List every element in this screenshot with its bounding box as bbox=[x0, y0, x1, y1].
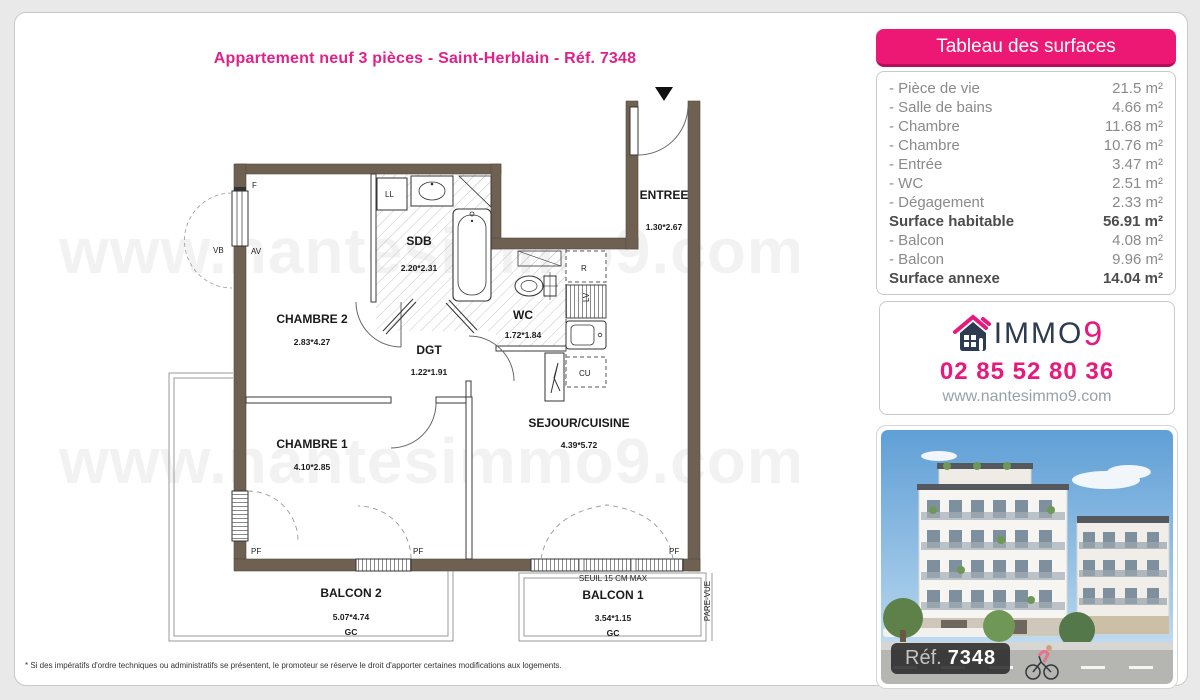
surface-row: - WC2.51 m² bbox=[889, 174, 1163, 193]
surface-row-label: Surface annexe bbox=[889, 269, 1000, 288]
room-gc-balcon1: GC bbox=[607, 628, 620, 638]
label-ll: LL bbox=[385, 190, 394, 199]
surface-row-value: 10.76 m² bbox=[1104, 136, 1163, 155]
photo-ref-badge: Réf.7348 bbox=[891, 643, 1010, 674]
surface-row-value: 2.33 m² bbox=[1112, 193, 1163, 212]
surface-row-value: 56.91 m² bbox=[1103, 212, 1163, 231]
pare-vue-note: PARE-VUE bbox=[703, 581, 712, 621]
label-r: R bbox=[581, 264, 587, 273]
surface-row: - Chambre10.76 m² bbox=[889, 136, 1163, 155]
building-photo: Réf.7348 bbox=[881, 430, 1173, 684]
balcony-door-arcs bbox=[248, 491, 673, 559]
room-dims-balcon1: 3.54*1.15 bbox=[595, 613, 632, 623]
window-f bbox=[232, 191, 248, 246]
room-dims-chambre1: 4.10*2.85 bbox=[294, 462, 331, 472]
label-cu: CU bbox=[579, 369, 591, 378]
toilet bbox=[515, 276, 543, 296]
washbasin bbox=[411, 176, 453, 206]
surfaces-panel: Tableau des surfaces - Pièce de vie21.5 … bbox=[876, 29, 1176, 295]
surface-subtotal-row: Surface habitable56.91 m² bbox=[889, 212, 1163, 231]
room-label-dgt: DGT bbox=[416, 343, 442, 357]
label-lv: LV bbox=[582, 292, 591, 302]
surface-row: - Balcon4.08 m² bbox=[889, 231, 1163, 250]
surface-row-value: 3.47 m² bbox=[1112, 155, 1163, 174]
room-label-balcon2: BALCON 2 bbox=[320, 586, 382, 600]
label-pf-chambre1: PF bbox=[413, 547, 423, 556]
surface-row-label: - Entrée bbox=[889, 155, 942, 174]
surface-row-label: - Balcon bbox=[889, 250, 944, 269]
room-label-sdb: SDB bbox=[406, 234, 432, 248]
entrance-door-arc bbox=[638, 107, 688, 155]
surface-row: - Dégagement2.33 m² bbox=[889, 193, 1163, 212]
page-title: Appartement neuf 3 pièces - Saint-Herbla… bbox=[15, 50, 835, 68]
label-av: AV bbox=[251, 247, 262, 256]
surface-row: - Salle de bains4.66 m² bbox=[889, 98, 1163, 117]
label-pf-left: PF bbox=[251, 547, 261, 556]
surface-row-label: - WC bbox=[889, 174, 923, 193]
building-main bbox=[917, 462, 1069, 636]
room-label-sejour: SEJOUR/CUISINE bbox=[528, 416, 629, 430]
room-dims-dgt: 1.22*1.91 bbox=[411, 367, 448, 377]
floor-plan-svg: CHAMBRE 2 2.83*4.27 CHAMBRE 1 4.10*2.85 … bbox=[161, 81, 781, 666]
window-pf-left bbox=[232, 491, 248, 541]
surface-row-value: 14.04 m² bbox=[1103, 269, 1163, 288]
surface-row-value: 4.66 m² bbox=[1112, 98, 1163, 117]
room-gc-balcon2: GC bbox=[345, 627, 358, 637]
surface-total-row: Surface annexe14.04 m² bbox=[889, 269, 1163, 288]
surface-row-value: 21.5 m² bbox=[1112, 79, 1163, 98]
window-pf-sejour bbox=[531, 559, 683, 571]
agency-card: IMMO9 02 85 52 80 36 www.nantesimmo9.com bbox=[879, 301, 1175, 415]
ref-label: Réf. bbox=[905, 647, 942, 669]
agency-phone[interactable]: 02 85 52 80 36 bbox=[880, 358, 1174, 386]
balcon2-outline bbox=[169, 373, 453, 641]
room-label-entree: ENTREE bbox=[640, 188, 689, 202]
surface-row-value: 11.68 m² bbox=[1105, 117, 1163, 136]
surface-row-label: - Salle de bains bbox=[889, 98, 992, 117]
label-f: F bbox=[252, 181, 257, 190]
agency-website-link[interactable]: www.nantesimmo9.com bbox=[880, 388, 1174, 406]
room-dims-chambre2: 2.83*4.27 bbox=[294, 337, 331, 347]
window-pf-chambre1 bbox=[356, 559, 411, 571]
room-dims-entree: 1.30*2.67 bbox=[646, 222, 683, 232]
surface-row-label: - Chambre bbox=[889, 136, 960, 155]
surface-row-value: 2.51 m² bbox=[1112, 174, 1163, 193]
room-dims-wc: 1.72*1.84 bbox=[505, 330, 542, 340]
surface-row: - Pièce de vie21.5 m² bbox=[889, 79, 1163, 98]
surface-row-label: - Dégagement bbox=[889, 193, 984, 212]
label-vb: VB bbox=[213, 246, 224, 255]
surfaces-panel-title: Tableau des surfaces bbox=[876, 29, 1176, 67]
label-pf-sejour: PF bbox=[669, 547, 679, 556]
room-label-chambre2: CHAMBRE 2 bbox=[276, 312, 348, 326]
seuil-note: SEUIL 15 CM MAX bbox=[579, 574, 648, 583]
surface-row-label: - Pièce de vie bbox=[889, 79, 980, 98]
surface-row: - Chambre11.68 m² bbox=[889, 117, 1163, 136]
entrance-door-leaf bbox=[630, 107, 638, 155]
ref-number: 7348 bbox=[948, 647, 997, 669]
agency-logo-digit: 9 bbox=[1083, 315, 1102, 354]
surface-row-value: 9.96 m² bbox=[1112, 250, 1163, 269]
surface-row: - Entrée3.47 m² bbox=[889, 155, 1163, 174]
content-card: Appartement neuf 3 pièces - Saint-Herbla… bbox=[14, 12, 1188, 686]
surface-row-label: Surface habitable bbox=[889, 212, 1014, 231]
building-photo-card: Réf.7348 bbox=[876, 425, 1178, 689]
floor-plan: CHAMBRE 2 2.83*4.27 CHAMBRE 1 4.10*2.85 … bbox=[161, 81, 781, 666]
door-arc-chambre1 bbox=[391, 403, 436, 448]
surface-row: - Balcon9.96 m² bbox=[889, 250, 1163, 269]
room-label-wc: WC bbox=[513, 308, 533, 322]
surfaces-table: - Pièce de vie21.5 m² - Salle de bains4.… bbox=[876, 71, 1176, 295]
surface-row-value: 4.08 m² bbox=[1112, 231, 1163, 250]
building-right bbox=[1077, 516, 1169, 634]
agency-logo-text: IMMO bbox=[994, 317, 1084, 351]
room-dims-sdb: 2.20*2.31 bbox=[401, 263, 438, 273]
room-dims-sejour: 4.39*5.72 bbox=[561, 440, 598, 450]
entrance-arrow-icon bbox=[655, 87, 673, 101]
room-label-balcon1: BALCON 1 bbox=[582, 588, 644, 602]
surface-row-label: - Balcon bbox=[889, 231, 944, 250]
agency-logo: IMMO9 bbox=[880, 314, 1174, 354]
room-dims-balcon2: 5.07*4.74 bbox=[333, 612, 370, 622]
house-logo-icon bbox=[952, 314, 994, 354]
room-label-chambre1: CHAMBRE 1 bbox=[276, 437, 348, 451]
surface-row-label: - Chambre bbox=[889, 117, 960, 136]
